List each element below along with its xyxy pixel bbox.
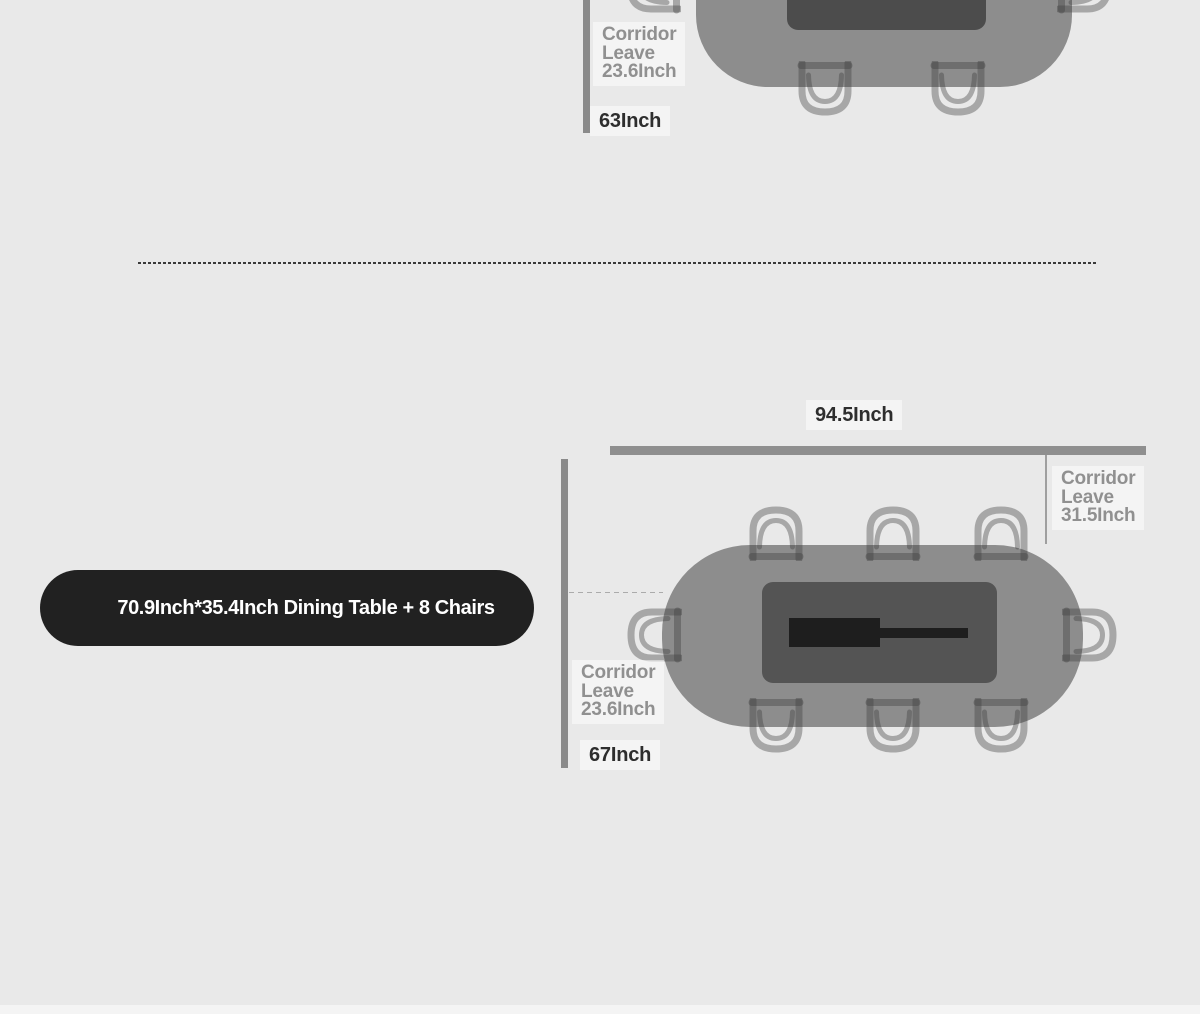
corridor-dashed-line (569, 592, 663, 593)
corridor-label-line: Corridor (581, 664, 655, 683)
chair-icon (861, 503, 925, 561)
corridor-dimension-line (1045, 455, 1047, 544)
table-leaf-panel (762, 582, 997, 683)
top-wall-bar (583, 0, 590, 133)
chair-icon (1062, 603, 1120, 667)
extension-slide-icon (789, 618, 880, 647)
chair-icon (623, 0, 681, 18)
room-length-label: 63Inch (590, 106, 670, 136)
table-leaf-panel (787, 0, 986, 30)
chair-icon (861, 698, 925, 756)
room-width-label: 94.5Inch (806, 400, 902, 430)
chair-icon (744, 698, 808, 756)
dining-table-dimension-diagram: Corridor Leave 23.6Inch 63Inch 94.5Inch … (0, 0, 1200, 1014)
chair-icon (744, 503, 808, 561)
section-divider-dashed-line (138, 262, 1098, 264)
chair-icon (624, 603, 682, 667)
chair-icon (969, 698, 1033, 756)
corridor-label-line: Corridor (602, 26, 676, 45)
left-wall-bar (561, 459, 568, 768)
corridor-leave-right-label: Corridor Leave 31.5Inch (1052, 466, 1144, 530)
chair-icon (793, 61, 857, 119)
corridor-label-line: 31.5Inch (1061, 507, 1135, 526)
chair-icon (926, 61, 990, 119)
corridor-leave-left-label: Corridor Leave 23.6Inch (572, 660, 664, 724)
corridor-label-line: 23.6Inch (602, 63, 676, 82)
extension-rail-icon (880, 628, 968, 638)
top-wall-bar (610, 446, 1146, 455)
chair-icon (969, 503, 1033, 561)
product-size-label: 70.9Inch*35.4Inch Dining Table + 8 Chair… (117, 597, 494, 620)
corridor-label-line: 23.6Inch (581, 701, 655, 720)
product-size-badge: 70.9Inch*35.4Inch Dining Table + 8 Chair… (40, 570, 534, 646)
footer-strip (0, 1005, 1200, 1014)
room-length-label: 67Inch (580, 740, 660, 770)
corridor-leave-label: Corridor Leave 23.6Inch (593, 22, 685, 86)
chair-icon (1057, 0, 1115, 18)
dining-table-top (696, 0, 1072, 87)
corridor-label-line: Corridor (1061, 470, 1135, 489)
